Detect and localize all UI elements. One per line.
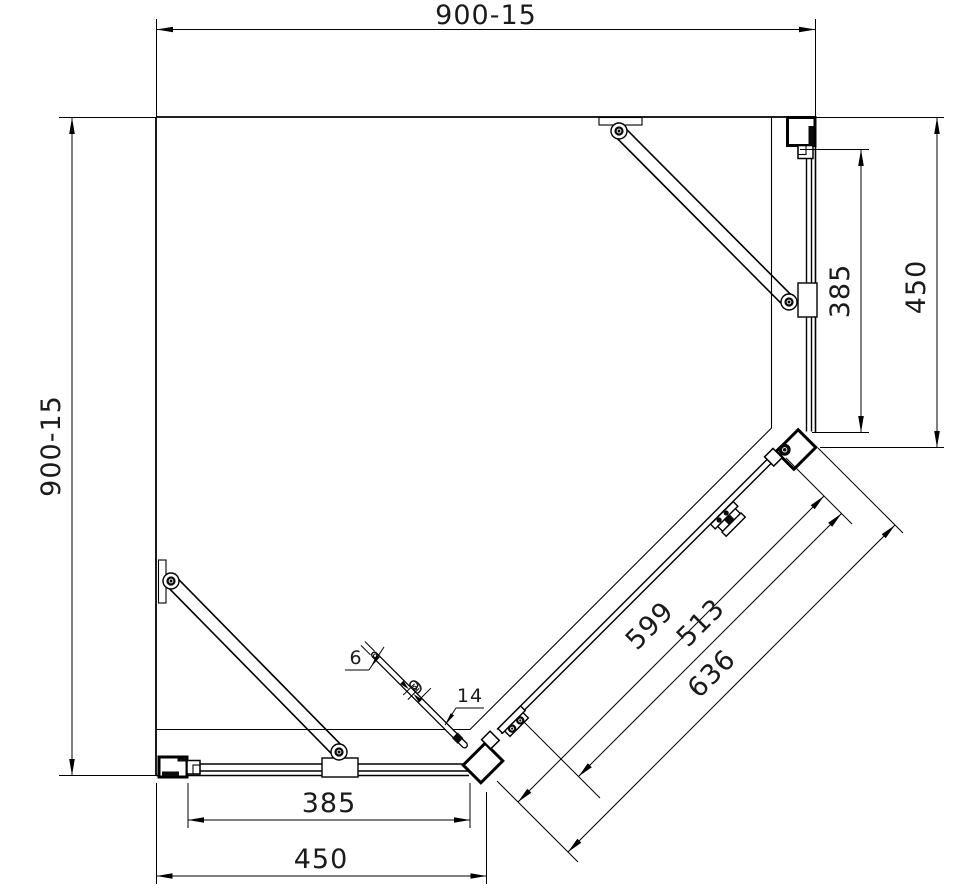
dim-diagonal-group: 599 513 636: [497, 448, 903, 862]
wall-profile-top-right: [788, 118, 816, 159]
door-pivot-icon: [779, 444, 791, 456]
dim-label-diag-overall: 636: [682, 644, 742, 704]
technical-drawing: 900-15 900-15 385 450 385: [0, 0, 978, 894]
dim-label-handle-thickness: 6: [349, 647, 362, 669]
dim-label-top-width: 900-15: [435, 0, 537, 31]
door-glass: [497, 446, 785, 734]
dim-label-bottom-panel: 385: [302, 788, 357, 819]
bottom-panel-connector-block: [322, 758, 358, 777]
dim-profile-14: 14: [445, 685, 484, 725]
dim-label-left-height: 900-15: [36, 395, 67, 497]
dim-handle-6: 6: [345, 647, 384, 670]
dim-label-diag-door: 513: [671, 593, 731, 653]
dim-top: 900-15: [157, 0, 816, 117]
support-brace-top: [599, 118, 797, 311]
dim-label-bottom-overall: 450: [294, 844, 349, 875]
door-bottom-roller: [498, 706, 531, 739]
door-center-clamp: [711, 502, 747, 538]
dim-bottom-385: 385: [188, 783, 470, 828]
dim-label-right-panel: 385: [825, 264, 856, 319]
dim-label-profile-width: 14: [457, 685, 483, 707]
dim-handle-9: 9: [403, 673, 431, 701]
dim-label-right-overall: 450: [901, 260, 932, 315]
right-panel-connector-block: [798, 283, 817, 317]
wall-profile-bottom-left: [159, 757, 200, 777]
dim-label-handle-offset: 9: [404, 674, 429, 699]
dim-left: 900-15: [36, 118, 156, 776]
corner-bracket-top: [765, 427, 816, 478]
cad-canvas: 900-15 900-15 385 450 385: [0, 0, 978, 894]
